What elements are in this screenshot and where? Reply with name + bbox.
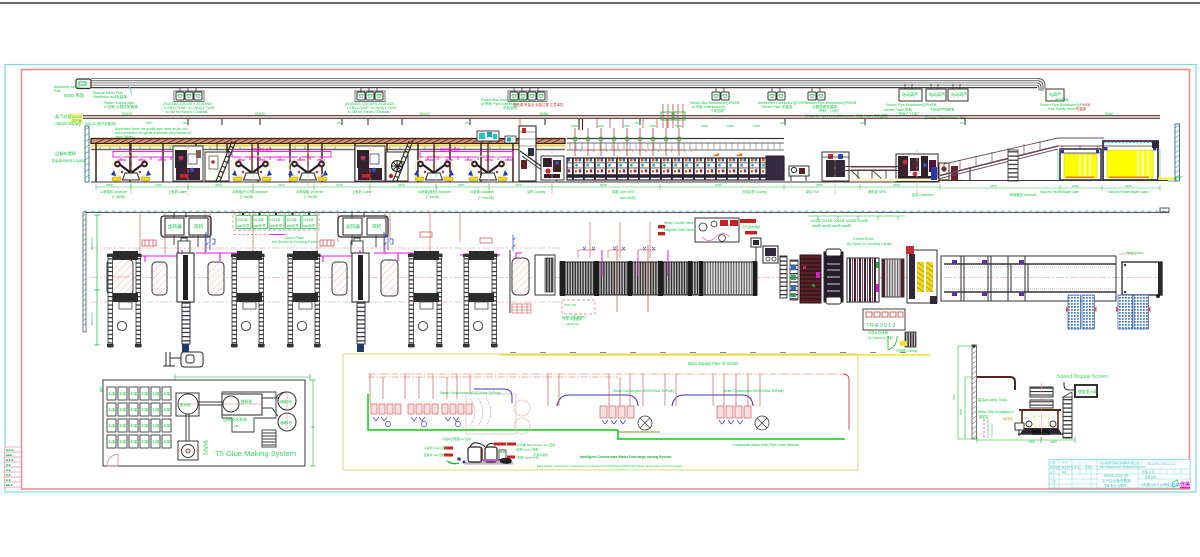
svg-text:(7 mm米): (7 mm米) xyxy=(304,194,317,199)
svg-text:aaa年早: aaa年早 xyxy=(303,223,316,228)
svg-text:DN1: DN1 xyxy=(337,121,343,125)
svg-text:高温冷凝水: 高温冷凝水 xyxy=(533,452,548,457)
svg-text:Hot Section to Counting Contro: Hot Section to Counting Control xyxy=(272,240,319,244)
svg-text:冷却塔 Cooling: 冷却塔 Cooling xyxy=(896,348,917,353)
svg-text:料架: 料架 xyxy=(120,391,127,396)
svg-text:■■■: ■■■ xyxy=(6,453,12,457)
svg-text:Vacuum PackerStayer case: Vacuum PackerStayer case xyxy=(1040,190,1079,194)
svg-text:2000: 2000 xyxy=(458,183,465,187)
svg-text:料架: 料架 xyxy=(164,391,171,396)
svg-text:DN1: DN1 xyxy=(860,121,866,125)
svg-text:拖链电缆 线槽: 拖链电缆 线槽 xyxy=(252,147,273,152)
svg-text:料架: 料架 xyxy=(164,407,171,412)
svg-text:蒸汽总管: 蒸汽总管 xyxy=(55,113,72,120)
svg-text:电动葫芦: 电动葫芦 xyxy=(902,91,918,97)
svg-text:料架: 料架 xyxy=(109,439,116,444)
svg-text:4201 201: 4201 201 xyxy=(564,303,577,307)
svg-text:DN50: DN50 xyxy=(675,124,683,128)
svg-text:aaa年早: aaa年早 xyxy=(237,223,250,228)
svg-text:速度显示屏: 速度显示屏 xyxy=(1078,389,1097,394)
svg-text:料架: 料架 xyxy=(120,439,127,444)
svg-text:Intelligent Condensate Water D: Intelligent Condensate Water Discharge s… xyxy=(580,455,671,459)
svg-text:加热器: 加热器 xyxy=(168,223,182,230)
svg-text:3000: 3000 xyxy=(893,183,900,187)
svg-text:to 4M for Steam / Chassis: to 4M for Steam / Chassis xyxy=(348,110,390,114)
svg-text:Control Room: Control Room xyxy=(853,237,874,241)
svg-text:■ ■ ■: ■ ■ ■ xyxy=(6,448,14,452)
svg-text:涂布 Coating: 涂布 Coating xyxy=(527,189,545,194)
svg-text:DN50: DN50 xyxy=(753,124,761,128)
svg-text:BETTERDECOR (HANGZHOU) LTD.: BETTERDECOR (HANGZHOU) LTD. xyxy=(1100,465,1147,469)
svg-text:Steam Consumption 400KG/Hour 1: Steam Consumption 400KG/Hour 1MPa(in) xyxy=(440,391,501,395)
svg-text:■ ■ ■: ■ ■ ■ xyxy=(6,458,14,462)
svg-text:DN1: DN1 xyxy=(635,121,641,125)
svg-text:7)XXPPWEB: 7)XXPPWEB xyxy=(930,107,955,112)
svg-text:Vacuum PackerStayer case2: Vacuum PackerStayer case2 xyxy=(1108,190,1149,194)
svg-text:DN50: DN50 xyxy=(727,124,735,128)
svg-text:Speed Display Screen: Speed Display Screen xyxy=(1057,374,1108,380)
svg-text:DN100: DN100 xyxy=(420,112,430,116)
svg-text:蒸汽疏水阀组: 蒸汽疏水阀组 xyxy=(742,224,760,229)
svg-text:(7 mm米): (7 mm米) xyxy=(112,194,125,199)
svg-text:料架: 料架 xyxy=(131,423,138,428)
svg-text:DN50: DN50 xyxy=(1105,112,1113,116)
svg-text:烘箱 Oven 9000: 烘箱 Oven 9000 xyxy=(612,189,635,194)
svg-text:4500m3/h: 4500m3/h xyxy=(566,322,580,326)
svg-text:2016年: 2016年 xyxy=(237,217,248,222)
svg-text:回收水 Inlet 回收: 回收水 Inlet 回收 xyxy=(424,453,445,457)
svg-text:(set mm米): (set mm米) xyxy=(620,195,636,200)
svg-text:上胶机Coater: 上胶机Coater xyxy=(168,189,188,194)
svg-text:料架: 料架 xyxy=(142,423,149,428)
svg-text:3000: 3000 xyxy=(959,408,963,415)
svg-text:储罐2号: 储罐2号 xyxy=(280,399,293,404)
svg-text:风机: 风机 xyxy=(372,223,382,230)
svg-text:料架: 料架 xyxy=(120,423,127,428)
svg-text:aaa年早: aaa年早 xyxy=(270,223,283,228)
svg-text:DN1: DN1 xyxy=(960,121,966,125)
svg-text:佳美: 佳美 xyxy=(1180,481,1191,488)
svg-text:冷却水 回水管: 冷却水 回水管 xyxy=(868,330,888,335)
svg-text:料架: 料架 xyxy=(164,439,171,444)
svg-text:6m: 6m xyxy=(311,425,316,429)
svg-text:to 4M for Steam / Chassis: to 4M for Steam / Chassis xyxy=(166,110,208,114)
svg-text:胶水机: 胶水机 xyxy=(180,402,191,407)
svg-text:■ ■: ■ ■ xyxy=(6,473,11,477)
svg-text:Steam Consumption 400KG/Hour 1: Steam Consumption 400KG/Hour 1MPa(in) xyxy=(723,389,784,393)
svg-text:Main Supply Pipe of Steam: Main Supply Pipe of Steam xyxy=(688,361,739,366)
svg-text:1800: 1800 xyxy=(1072,184,1079,188)
svg-text:DN1: DN1 xyxy=(465,121,471,125)
svg-text:料架: 料架 xyxy=(153,423,160,428)
svg-text:T5 Glue Making System: T5 Glue Making System xyxy=(215,449,296,458)
svg-text:吊轨回收: 吊轨回收 xyxy=(1055,97,1069,102)
svg-text:储布架 WEB: 储布架 WEB xyxy=(868,189,886,194)
svg-text:料架: 料架 xyxy=(109,423,116,428)
svg-text:≡: ≡ xyxy=(203,452,205,456)
svg-text:Weld Clean: Weld Clean xyxy=(1126,251,1144,255)
svg-text:2800: 2800 xyxy=(816,183,823,187)
svg-text:料架: 料架 xyxy=(120,407,127,412)
svg-text:设备布置图: 设备布置图 xyxy=(55,150,76,157)
svg-text:W200-250(1)布: W200-250(1)布 xyxy=(1104,473,1129,478)
svg-text:4#放卷(网布) Unwinder: 4#放卷(网布) Unwinder xyxy=(418,189,452,194)
svg-text:aaa年 aaa年 aaa年 aaa年: aaa年 aaa年 aaa年 aaa年 xyxy=(812,223,852,228)
svg-text:自动胶水系统: 自动胶水系统 xyxy=(223,416,247,422)
svg-text:2016年: 2016年 xyxy=(254,217,265,222)
svg-text:4600: 4600 xyxy=(990,184,997,188)
svg-text:2200: 2200 xyxy=(1125,184,1132,188)
svg-text:2016年: 2016年 xyxy=(270,217,281,222)
svg-text:aaa年早: aaa年早 xyxy=(254,223,267,228)
svg-text:1#放卷机 Unwinder: 1#放卷机 Unwinder xyxy=(100,189,128,194)
svg-text:Steam Consumption 400KG/Hour 1: Steam Consumption 400KG/Hour 1MPa(in) xyxy=(613,389,674,393)
svg-text:4500: 4500 xyxy=(952,393,956,400)
svg-text:DN125: DN125 xyxy=(255,112,265,116)
svg-text:2016年: 2016年 xyxy=(287,217,298,222)
svg-text:料架: 料架 xyxy=(131,391,138,396)
svg-text:By Carton to Counting Carrier: By Carton to Counting Carrier xyxy=(847,242,893,246)
svg-text:(7.5 mm米): (7.5 mm米) xyxy=(478,195,494,200)
svg-text:DN：-: DN：- xyxy=(146,121,155,125)
svg-text:阶 段 标 记: 阶 段 标 记 xyxy=(1142,470,1155,474)
svg-text:1600: 1600 xyxy=(1028,440,1035,444)
svg-text:料架: 料架 xyxy=(142,439,149,444)
svg-text:■■ ■: ■■ ■ xyxy=(6,483,13,487)
svg-text:DN125: DN125 xyxy=(122,112,132,116)
svg-text:DN50: DN50 xyxy=(597,124,605,128)
svg-text:(闪蒸罐) 500L (Steam out) 回收: (闪蒸罐) 500L (Steam out) 回收 xyxy=(516,443,555,447)
svg-text:9000: 9000 xyxy=(600,183,607,187)
svg-text:2300: 2300 xyxy=(278,183,285,187)
svg-text:(48): (48) xyxy=(234,424,239,428)
svg-text:(7 mm米): (7 mm米) xyxy=(426,194,439,199)
svg-text:2016年: 2016年 xyxy=(303,217,314,222)
svg-text:W1200-7200-2-01: W1200-7200-2-01 xyxy=(1148,462,1175,466)
svg-text:Steam Pipe 安装架: Steam Pipe 安装架 xyxy=(762,104,793,109)
svg-text:料架: 料架 xyxy=(153,407,160,412)
svg-text:搅拌机: 搅拌机 xyxy=(241,399,253,404)
svg-text:料架: 料架 xyxy=(109,407,116,412)
svg-text:by Carton to 冷却: by Carton to 冷却 xyxy=(868,335,893,340)
svg-text:上胶机 Coater: 上胶机 Coater xyxy=(352,189,373,194)
svg-text:2#放卷(PVC布) Unwinder: 2#放卷(PVC布) Unwinder xyxy=(232,189,269,194)
svg-text:料架: 料架 xyxy=(153,439,160,444)
svg-text:储罐1号: 储罐1号 xyxy=(280,420,293,425)
svg-text:5000 吊轨: 5000 吊轨 xyxy=(64,92,85,99)
svg-text:加热器: 加热器 xyxy=(346,223,360,230)
svg-text:料架: 料架 xyxy=(109,391,116,396)
svg-text:DN50: DN50 xyxy=(571,124,579,128)
svg-text:DN50: DN50 xyxy=(623,124,631,128)
svg-text:DN1: DN1 xyxy=(183,121,189,125)
svg-text:2100: 2100 xyxy=(336,183,343,187)
svg-text:■ ■: ■ ■ xyxy=(6,463,11,467)
svg-text:(回收 back 2 回收): (回收 back 2 回收) xyxy=(516,448,539,452)
svg-text:编号: 编号 xyxy=(99,386,103,392)
svg-text:5000 mm: 5000 mm xyxy=(90,312,94,325)
svg-text:Equipment Layout: Equipment Layout xyxy=(52,158,87,163)
svg-text:TB-EA-VER: TB-EA-VER xyxy=(1104,483,1126,488)
svg-text:固定架: 固定架 xyxy=(979,414,989,419)
svg-text:贴合 Laminator: 贴合 Laminator xyxy=(912,192,934,197)
svg-text:钢丝绳 吊装点 安装位置 注意事项: 钢丝绳 吊装点 安装位置 注意事项 xyxy=(513,102,564,107)
svg-text:■ ■: ■ ■ xyxy=(6,468,11,472)
svg-text:Rail: Rail xyxy=(54,89,60,93)
svg-text:电葫芦: 电葫芦 xyxy=(1049,91,1061,97)
svg-text:2016年 2016年 2016年 2016年 2016年: 2016年 2016年 2016年 2016年 2016年 xyxy=(810,218,869,223)
svg-text:冷凝水回收器 by 自动: 冷凝水回收器 by 自动 xyxy=(442,436,471,441)
svg-text:拖链电缆 线槽: 拖链电缆 线槽 xyxy=(440,147,461,152)
svg-text:料架: 料架 xyxy=(131,439,138,444)
svg-text:建议(at safety Track): 建议(at safety Track) xyxy=(978,397,1007,402)
svg-text:Distributor,and安装架: Distributor,and安装架 xyxy=(93,94,127,99)
svg-text:1500: 1500 xyxy=(155,183,162,187)
svg-text:Within Step Workgday-lvl: Within Step Workgday-lvl xyxy=(978,410,1014,414)
svg-text:2600: 2600 xyxy=(215,183,222,187)
svg-text:电动葫芦: 电动葫芦 xyxy=(951,91,967,97)
svg-text:aaa年早: aaa年早 xyxy=(287,223,300,228)
svg-text:Gas Safety Valve安装架: Gas Safety Valve安装架 xyxy=(1048,106,1087,111)
svg-text:DN50: DN50 xyxy=(649,124,657,128)
svg-text:料架: 料架 xyxy=(131,407,138,412)
svg-text:电动葫芦: 电动葫芦 xyxy=(929,91,945,97)
svg-text:料架: 料架 xyxy=(142,391,149,396)
svg-text:牵引 Pull: 牵引 Pull xyxy=(806,189,819,194)
svg-text:"7米回收": "7米回收" xyxy=(710,108,726,113)
svg-text:斜坡输送 conveyor: 斜坡输送 conveyor xyxy=(1010,192,1038,197)
svg-text:Steam Control Valve: Steam Control Valve xyxy=(664,221,693,225)
svg-text:Condensate Water Main Pipe Low: Condensate Water Main Pipe Lower Bracket xyxy=(732,443,799,447)
svg-text:of 回收 点数回收管路: of 回收 点数回收管路 xyxy=(104,104,138,109)
svg-text:重量 比例: 重量 比例 xyxy=(1145,475,1157,479)
svg-text:5000: 5000 xyxy=(715,183,722,187)
svg-text:DN50: DN50 xyxy=(701,124,709,128)
svg-text:5#放卷 Unwinder: 5#放卷 Unwinder xyxy=(470,189,495,194)
svg-text:DN125 (蒸汽总管线): DN125 (蒸汽总管线) xyxy=(85,121,116,126)
svg-text:2400: 2400 xyxy=(515,183,522,187)
svg-text:1600: 1600 xyxy=(1050,440,1057,444)
svg-text:料架: 料架 xyxy=(153,391,160,396)
svg-text:3#放卷机 Unwinder: 3#放卷机 Unwinder xyxy=(296,189,324,194)
svg-text:7 R E 0 9 1 2: 7 R E 0 9 1 2 xyxy=(866,323,895,329)
svg-text:■ ■: ■ ■ xyxy=(6,478,11,482)
svg-text:DN80: DN80 xyxy=(540,112,548,116)
svg-text:料架: 料架 xyxy=(164,423,171,428)
svg-text:"吊轨" "(1米)": "吊轨" "(1米)" xyxy=(818,108,840,113)
svg-text:冷却 风量要求: 冷却 风量要求 xyxy=(563,316,582,321)
svg-text:蒸汽管: 蒸汽管 xyxy=(72,118,82,123)
svg-text:Each Steam Consumption at Glue: Each Steam Consumption at Glued (Dry pro… xyxy=(537,464,682,468)
svg-text:料架: 料架 xyxy=(142,407,149,412)
svg-text:冷却定型 Cooling: 冷却定型 Cooling xyxy=(742,189,767,194)
svg-text:地坪线: 地坪线 xyxy=(1003,416,1013,421)
svg-text:2300: 2300 xyxy=(106,183,113,187)
svg-text:冷凝水 Outlet 回收: 冷凝水 Outlet 回收 xyxy=(424,446,447,450)
svg-text:Magnetic Grab Valve: Magnetic Grab Valve xyxy=(664,228,694,232)
svg-text:风机: 风机 xyxy=(194,223,204,230)
svg-text:DN1: DN1 xyxy=(780,121,786,125)
svg-text:2600: 2600 xyxy=(398,183,405,187)
svg-text:(7 mm米): (7 mm米) xyxy=(240,194,253,199)
